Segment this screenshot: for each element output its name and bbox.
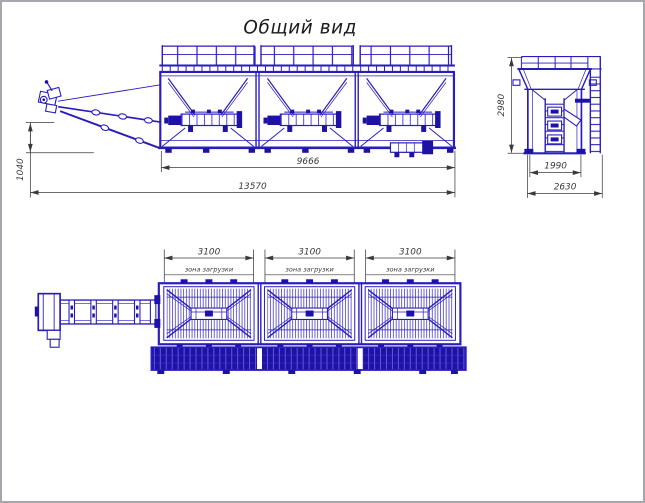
plan-walkway	[151, 347, 465, 374]
zone-label-2: зона загрузки	[285, 266, 333, 274]
discharge-chute	[564, 109, 581, 126]
dim-hitch-height: 1040	[16, 123, 94, 198]
dim-hitch-height-label: 1040	[16, 158, 26, 181]
end-view: 2980 1990 2630	[497, 57, 602, 198]
hopper-section-3	[361, 78, 454, 152]
end-ladder	[575, 57, 602, 154]
side-view: 1040 9666 13570	[16, 45, 456, 197]
drawing-sheet: Общий вид	[0, 0, 645, 503]
hopper-section-2	[261, 78, 354, 152]
page-title: Общий вид	[243, 18, 356, 39]
zone-label-3: зона загрузки	[386, 266, 434, 274]
dim-hopper-length-label: 9666	[297, 157, 320, 167]
dim-zone-width-1: 3100	[198, 247, 221, 257]
end-hopper	[513, 69, 596, 89]
dim-overall-length: 13570	[30, 182, 455, 192]
dim-overall-height-label: 2980	[497, 94, 507, 117]
plan-conveyor	[35, 294, 160, 348]
grate-section-2	[264, 279, 354, 348]
end-elevator	[532, 90, 581, 153]
dim-frame-width: 1990	[530, 155, 581, 177]
plan-dim-section-3: 3100 зона загрузки	[366, 247, 455, 283]
end-railing	[521, 57, 600, 69]
zone-label-1: зона загрузки	[185, 266, 233, 274]
plan-view: 3100 зона загрузки 3100 зона загрузки 31…	[35, 247, 466, 374]
dim-overall-length-label: 13570	[238, 182, 267, 192]
plan-dim-section-1: 3100 зона загрузки	[164, 247, 253, 283]
dim-hopper-length: 9666	[161, 151, 455, 198]
dim-frame-width-label: 1990	[544, 162, 567, 172]
dim-overall-width-label: 2630	[554, 182, 577, 192]
grate-section-1	[164, 279, 254, 348]
drawing-canvas: Общий вид	[2, 2, 643, 501]
discharge-screw	[390, 141, 433, 157]
plan-dim-section-2: 3100 зона загрузки	[265, 247, 354, 283]
hitch-assembly	[38, 80, 160, 148]
dim-zone-width-3: 3100	[399, 247, 422, 257]
hopper-section-1	[162, 78, 255, 152]
grate-section-3	[365, 279, 455, 348]
side-railing	[159, 45, 455, 72]
dim-zone-width-2: 3100	[298, 247, 321, 257]
